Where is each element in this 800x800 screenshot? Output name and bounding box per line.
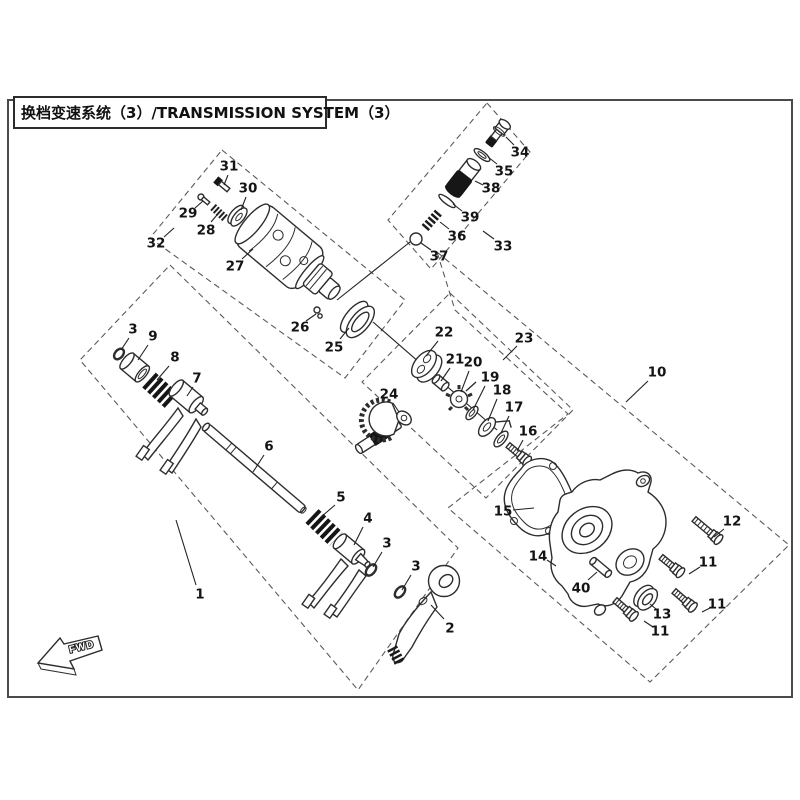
callout-7: 7 [192,371,201,387]
part-24-sector-gear [354,400,414,455]
callout-13: 13 [653,607,672,623]
alignment-line-1 [337,242,410,300]
leader-3 [402,575,411,590]
page-border [8,100,792,697]
leader-33 [483,231,494,239]
part-4-shift-fork [302,532,375,618]
leader-3 [121,338,129,350]
part-36-spring [425,212,439,228]
callout-3: 3 [128,322,137,338]
callout-22: 22 [435,325,454,341]
callout-20: 20 [464,355,483,371]
callout-10: 10 [648,365,667,381]
callout-1: 1 [195,587,204,603]
callout-12: 12 [723,514,742,530]
part-26-pin [314,307,322,318]
part-11-bolt-b [670,587,699,614]
leader-19 [473,386,485,410]
part-29-screw [197,193,211,206]
callout-6: 6 [264,439,273,455]
alignment-lines [337,242,497,430]
callout-40: 40 [572,581,591,597]
leader-9 [138,345,148,360]
callout-18: 18 [493,383,512,399]
callout-25: 25 [325,340,344,356]
title-box: 换档变速系统（3）/TRANSMISSION SYSTEM（3） [13,96,327,129]
callout-9: 9 [148,329,157,345]
callout-39: 39 [461,210,480,226]
part-5-spring [312,516,336,539]
leader-1 [176,520,196,585]
callout-14: 14 [529,549,548,565]
callout-5: 5 [336,490,345,506]
part-37-ball [410,233,422,245]
callout-24: 24 [380,387,399,403]
leader-5 [321,505,335,517]
callout-8: 8 [170,350,179,366]
callout-15: 15 [494,504,513,520]
page-title: 换档变速系统（3）/TRANSMISSION SYSTEM（3） [21,102,400,123]
callout-32: 32 [147,236,166,252]
callout-36: 36 [448,229,467,245]
leader-21 [441,368,450,381]
callout-3: 3 [411,559,420,575]
callout-31: 31 [220,159,239,175]
callout-2: 2 [445,621,454,637]
callout-11: 11 [699,555,718,571]
group-box-10 [437,252,789,682]
callout-38: 38 [482,181,501,197]
leader-4 [354,527,363,545]
leader-32 [164,228,174,237]
leader-17 [501,416,509,433]
callout-29: 29 [179,206,198,222]
part-20-star-cam [446,382,476,410]
callout-35: 35 [495,164,514,180]
callout-33: 33 [494,239,513,255]
part-3-washer-low [393,584,407,599]
callout-30: 30 [239,181,258,197]
part-31-bolt [214,177,231,193]
callout-17: 17 [505,400,524,416]
callout-21: 21 [446,352,465,368]
callout-23: 23 [515,331,534,347]
part-2-shift-arm [392,566,460,664]
callout-27: 27 [226,259,245,275]
callout-16: 16 [519,424,538,440]
leader-23 [503,346,517,360]
catalog-page: FWD 123987654333130292832272625343538393… [0,0,800,800]
part-8-spring [149,380,172,401]
callout-34: 34 [511,145,530,161]
callout-11: 11 [651,624,670,640]
part-34-plug-bolt [483,117,512,149]
part-27-shift-drum [229,199,353,315]
callout-28: 28 [197,223,216,239]
part-6-shaft [201,422,308,515]
leader-8 [157,366,169,380]
part-38-plunger [444,156,484,200]
callout-11: 11 [708,597,727,613]
fwd-arrow: FWD [38,636,102,675]
part-12-bolt [690,515,724,546]
callout-4: 4 [363,511,372,527]
callout-26: 26 [291,320,310,336]
leader-10 [626,381,648,402]
leader-28 [211,215,217,222]
callout-3: 3 [382,536,391,552]
callout-labels: 1239876543331302928322726253435383936373… [128,145,741,640]
part-11-bolt-a [657,552,686,579]
leader-31 [224,175,228,185]
leader-3 [373,552,382,567]
callout-37: 37 [430,249,449,265]
